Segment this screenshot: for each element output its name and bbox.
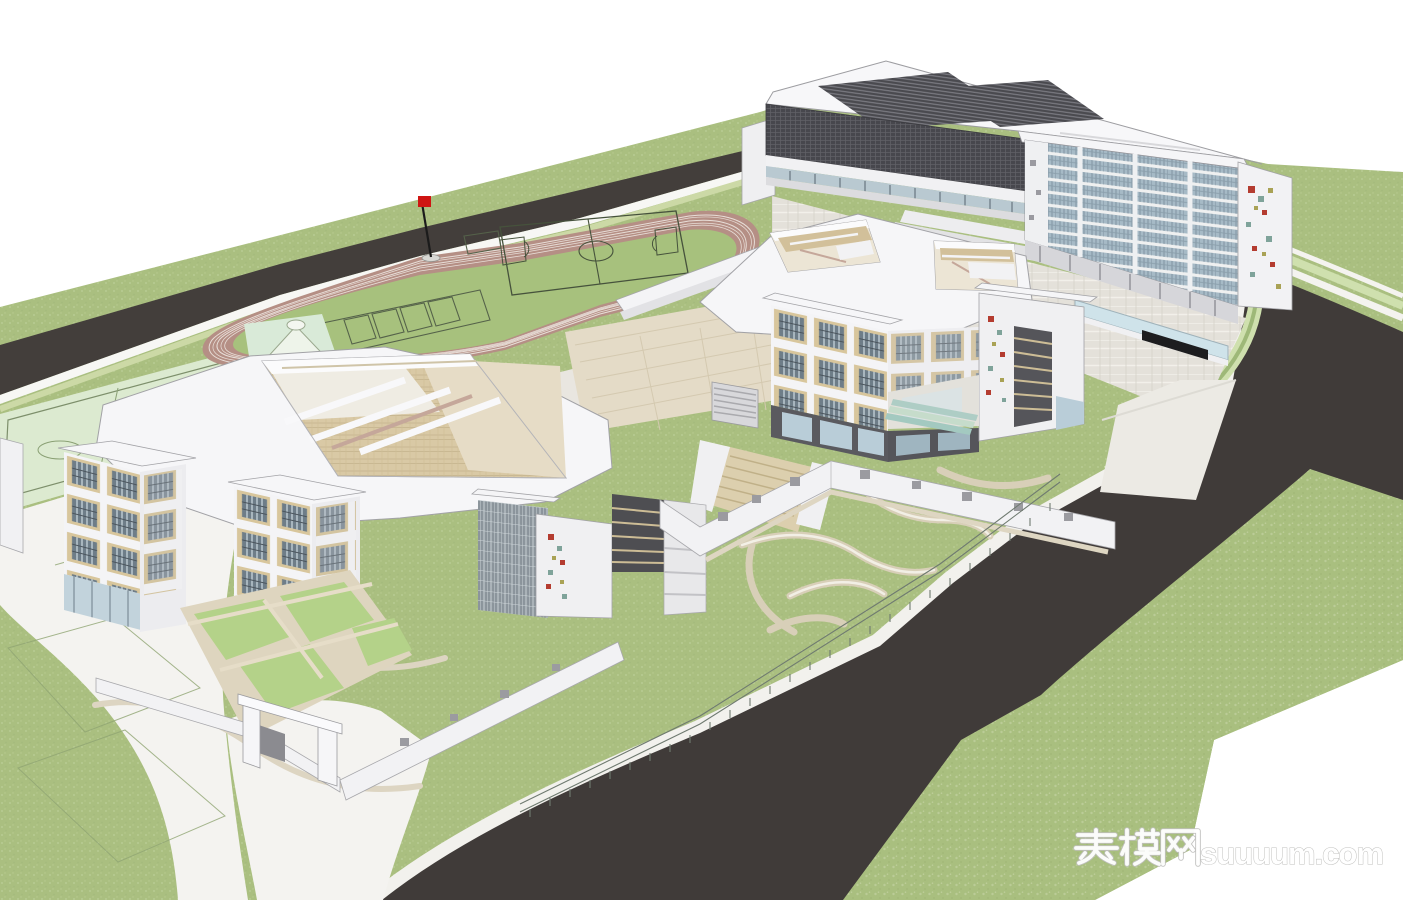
svg-text:suuuum.com: suuuum.com	[1200, 836, 1383, 871]
